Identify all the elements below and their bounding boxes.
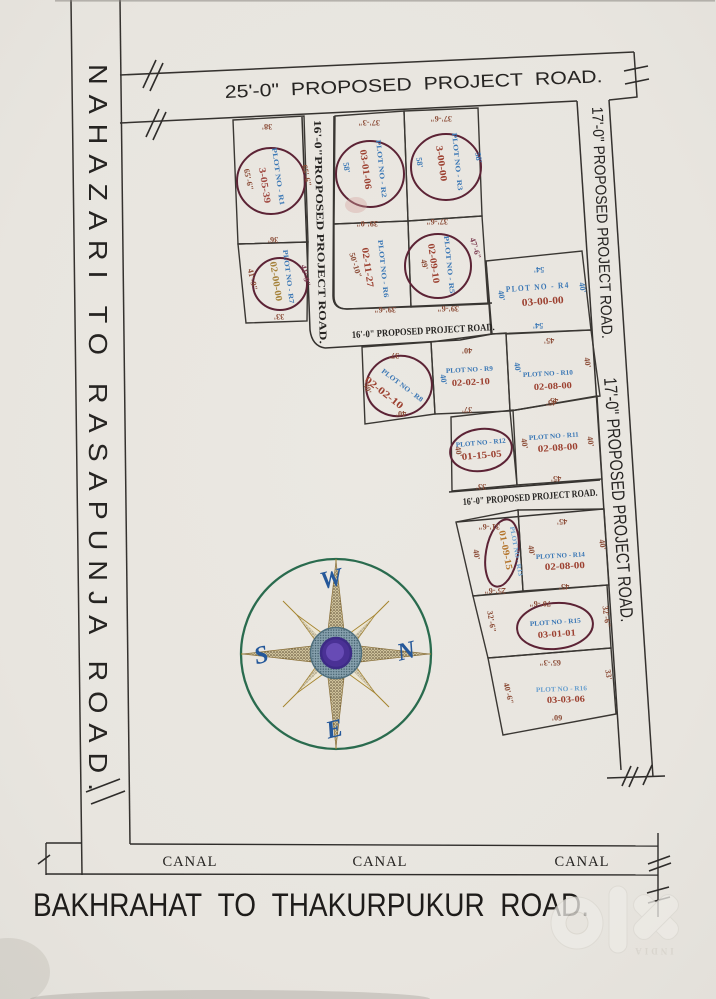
svg-text:40': 40': [512, 362, 523, 374]
svg-text:60': 60': [552, 713, 562, 722]
svg-text:40': 40': [462, 346, 472, 355]
svg-text:02-02-10: 02-02-10: [452, 376, 491, 388]
svg-text:45': 45': [551, 474, 561, 483]
svg-text:31'-6": 31'-6": [478, 522, 500, 531]
svg-text:58': 58': [414, 157, 425, 169]
svg-text:40': 40': [453, 446, 464, 458]
svg-text:40': 40': [597, 539, 608, 551]
svg-text:CANAL: CANAL: [353, 854, 408, 870]
svg-text:CANAL: CANAL: [555, 854, 610, 870]
svg-text:39'-6": 39'-6": [374, 305, 396, 314]
svg-text:37'-6": 37'-6": [426, 217, 448, 226]
svg-text:45': 45': [559, 582, 569, 591]
svg-text:40': 40': [582, 357, 593, 369]
svg-text:40': 40': [585, 436, 596, 448]
svg-text:37'-3": 37'-3": [358, 118, 380, 127]
svg-text:NAHAZARI TO RASAPUNJA ROAD.: NAHAZARI TO RASAPUNJA ROAD.: [83, 64, 113, 801]
svg-text:54': 54': [533, 321, 543, 330]
svg-text:45': 45': [544, 336, 554, 345]
svg-text:02-08-00: 02-08-00: [534, 380, 573, 392]
svg-text:33': 33': [476, 482, 486, 491]
svg-text:65'-3": 65'-3": [539, 658, 561, 667]
svg-text:70'-6": 70'-6": [529, 599, 551, 608]
svg-text:40': 40': [471, 549, 482, 561]
svg-text:CANAL: CANAL: [163, 854, 218, 870]
svg-text:BAKHRAHAT TO THAKURPUKUR RO: BAKHRAHAT TO THAKURPUKUR ROAD.: [33, 887, 589, 923]
svg-text:39'-0": 39'-0": [356, 219, 378, 228]
svg-text:40': 40': [526, 545, 537, 557]
svg-text:37': 37': [462, 405, 472, 414]
svg-text:36': 36': [268, 235, 278, 244]
svg-text:37': 37': [389, 351, 399, 360]
svg-text:39'-6": 39'-6": [437, 304, 459, 313]
svg-text:33': 33': [274, 312, 284, 321]
svg-text:INDIA: INDIA: [632, 946, 674, 956]
svg-text:33': 33': [603, 669, 613, 681]
svg-text:25'-6": 25'-6": [484, 586, 506, 595]
svg-text:40': 40': [496, 290, 507, 302]
svg-text:40': 40': [438, 374, 449, 386]
svg-text:40': 40': [577, 282, 588, 294]
svg-text:38': 38': [262, 122, 272, 131]
svg-text:40': 40': [396, 409, 406, 418]
svg-text:58': 58': [473, 152, 484, 164]
svg-text:03-03-06: 03-03-06: [547, 694, 586, 705]
svg-text:45': 45': [548, 396, 558, 405]
svg-text:45': 45': [557, 517, 567, 526]
svg-text:37'-6": 37'-6": [430, 114, 452, 123]
svg-text:02-08-00: 02-08-00: [545, 560, 586, 573]
svg-text:58': 58': [341, 162, 352, 174]
svg-text:40': 40': [519, 438, 530, 450]
svg-text:54': 54': [534, 265, 544, 274]
